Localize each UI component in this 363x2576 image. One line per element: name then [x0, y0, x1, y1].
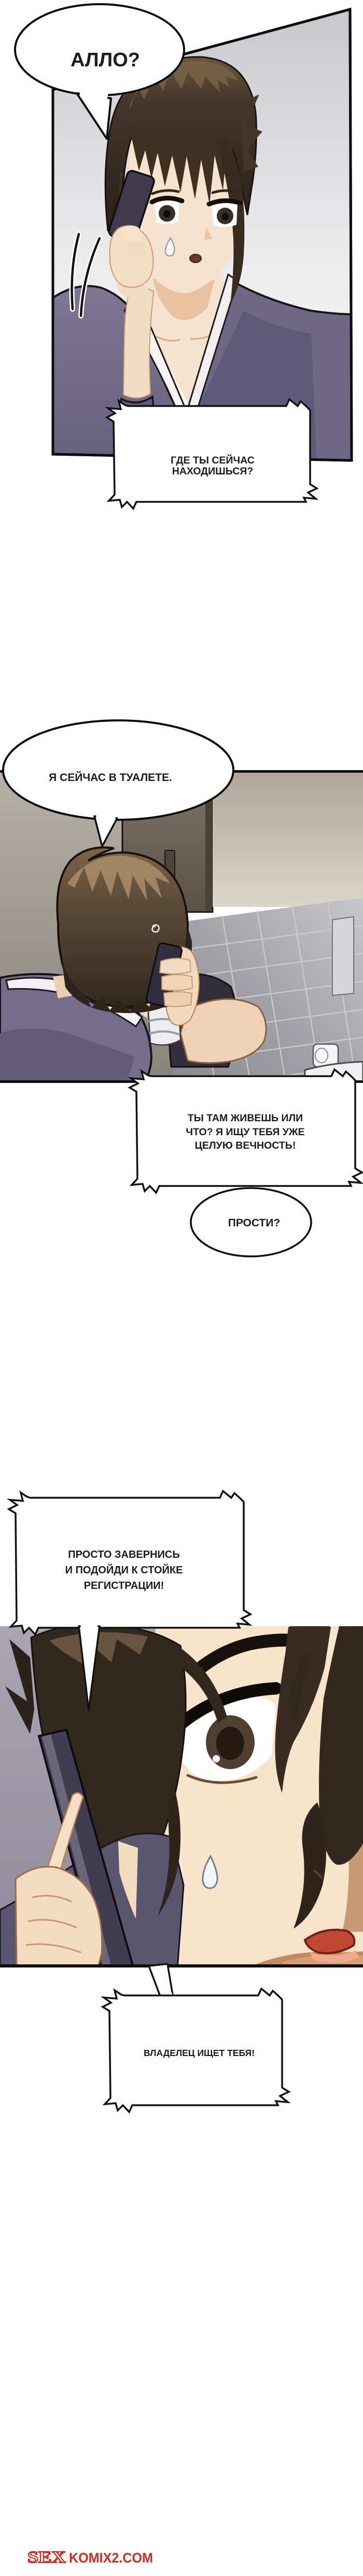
svg-text:АЛЛО?: АЛЛО?	[71, 49, 140, 71]
svg-text:ВЛАДЕЛЕЦ ИЩЕТ ТЕБЯ!: ВЛАДЕЛЕЦ ИЩЕТ ТЕБЯ!	[144, 2048, 255, 2058]
svg-text:НАХОДИШЬСЯ?: НАХОДИШЬСЯ?	[172, 466, 254, 477]
svg-text:SEX: SEX	[27, 2548, 66, 2566]
svg-text:ЧТО? Я ИЩУ ТЕБЯ УЖЕ: ЧТО? Я ИЩУ ТЕБЯ УЖЕ	[186, 1126, 304, 1138]
svg-text:РЕГИСТРАЦИИ!: РЕГИСТРАЦИИ!	[84, 1580, 164, 1591]
svg-text:ПРОСТИ?: ПРОСТИ?	[228, 1217, 281, 1229]
svg-text:И ПОДОЙДИ К СТОЙКЕ: И ПОДОЙДИ К СТОЙКЕ	[65, 1564, 183, 1576]
svg-text:ПРОСТО ЗАВЕРНИСЬ: ПРОСТО ЗАВЕРНИСЬ	[68, 1549, 180, 1560]
svg-text:ГДЕ ТЫ СЕЙЧАС: ГДЕ ТЫ СЕЙЧАС	[171, 454, 255, 466]
svg-text:Я СЕЙЧАС В ТУАЛЕТЕ.: Я СЕЙЧАС В ТУАЛЕТЕ.	[49, 771, 172, 784]
svg-text:ЦЕЛУЮ ВЕЧНОСТЬ!: ЦЕЛУЮ ВЕЧНОСТЬ!	[195, 1140, 296, 1151]
svg-text:KOMIX2.COM: KOMIX2.COM	[69, 2550, 153, 2566]
svg-text:ТЫ ТАМ ЖИВЕШЬ ИЛИ: ТЫ ТАМ ЖИВЕШЬ ИЛИ	[188, 1112, 303, 1124]
